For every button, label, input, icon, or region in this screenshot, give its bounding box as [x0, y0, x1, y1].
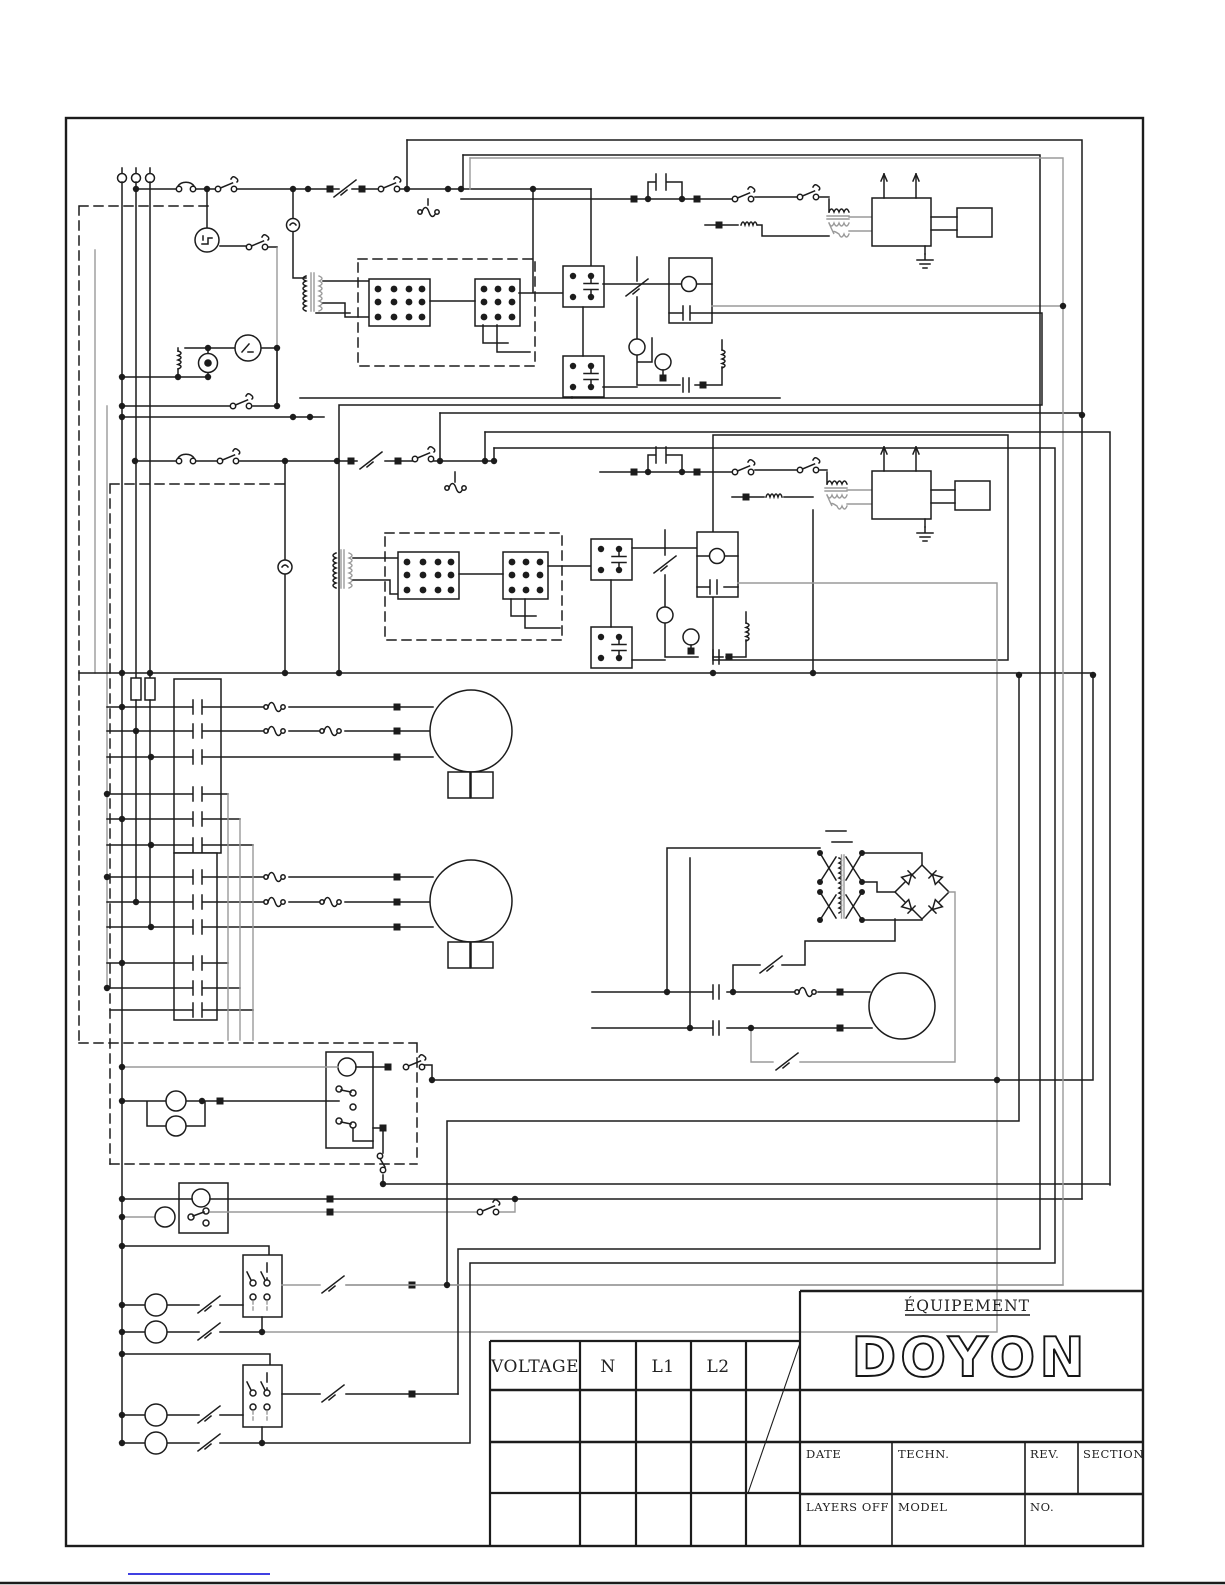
contactor-terminal-grid-icon: [398, 552, 459, 599]
capacitor-icon: [683, 378, 689, 392]
ignition-transformer-icon: [827, 209, 849, 237]
coil-icon: [178, 351, 181, 369]
contactor-terminal-grid-icon: [369, 279, 430, 326]
element-contact-bank-icon: [174, 853, 217, 1020]
spark-electrode-icon: [913, 174, 919, 198]
buzzer-icon: [278, 560, 292, 574]
no-field-label: NO.: [1030, 1500, 1054, 1514]
fuse-icon: [145, 678, 155, 700]
door-switch-block-icon: [243, 1255, 282, 1317]
contactor-terminal-grid-icon: [475, 279, 520, 326]
ground-icon: [917, 527, 933, 541]
dual-transformer-icon: [817, 850, 865, 923]
capacitor-icon: [713, 985, 719, 999]
indicator-lamp-icon: [166, 1091, 186, 1111]
techn-field-label: TECHN.: [898, 1447, 949, 1461]
brand-logo: DOYON: [851, 1326, 1088, 1389]
phase-terminal-icon: [132, 174, 141, 183]
thermal-contact-icon: [198, 1406, 220, 1423]
pump-motor-icon: [869, 973, 935, 1039]
burner-circuit-2: [135, 413, 1082, 1332]
switch-icon: [412, 447, 435, 462]
breaker-icon: [322, 1385, 344, 1402]
indicator-lamp-icon: [145, 1294, 167, 1316]
overload-icon: [795, 988, 816, 997]
heating-elements-and-motors: [79, 673, 1093, 1040]
pilot-valve-icon: [655, 354, 671, 370]
coil-icon: [722, 350, 725, 368]
phase-input-terminals: [95, 168, 155, 1443]
phase-terminal-icon: [118, 174, 127, 183]
capacitor-icon: [648, 174, 682, 199]
switch-icon: [217, 449, 240, 464]
spark-electrode-icon: [881, 447, 887, 471]
indicator-lamp-icon: [145, 1321, 167, 1343]
rev-field-label: REV.: [1030, 1447, 1059, 1461]
blower-motor-icon: [430, 690, 512, 772]
burner-circuit-1: [122, 140, 1063, 673]
inductor-icon: [741, 222, 757, 225]
model-field-label: MODEL: [898, 1500, 947, 1514]
ground-icon: [917, 254, 933, 268]
relay-contact-block-icon: [563, 266, 604, 307]
switch-icon: [732, 460, 755, 475]
thermostat-icon: [155, 1207, 175, 1227]
voltage-column-header: VOLTAGE: [490, 1357, 579, 1377]
transformer-icon: [333, 550, 352, 588]
n-column-header: N: [600, 1357, 615, 1377]
overload-icon: [445, 484, 466, 493]
transformer-rectifier-pump: [592, 831, 955, 1070]
switch-icon: [403, 1055, 426, 1070]
indicator-lamp-icon: [145, 1404, 167, 1426]
thermal-contact-icon: [198, 1434, 220, 1451]
breaker-icon: [322, 1276, 344, 1293]
sensor-box-icon: [955, 481, 990, 510]
sensor-box-icon: [957, 208, 992, 237]
dial-control-icon: [235, 335, 261, 361]
relay-contact-block-icon: [563, 356, 604, 397]
ignition-module-icon: [872, 198, 931, 246]
flame-sensor-icon: [629, 339, 645, 355]
layers-field-label: LAYERS OFF: [806, 1500, 889, 1514]
capacitor-icon: [713, 1021, 719, 1035]
thermal-contact-icon: [198, 1323, 220, 1340]
element-contact-bank-icon: [174, 679, 221, 853]
l2-column-header: L2: [706, 1357, 729, 1377]
contactor-terminal-grid-icon: [503, 552, 548, 599]
fuse-icon: [176, 454, 195, 463]
breaker-icon: [760, 956, 782, 973]
schematic-page: VOLTAGE N L1 L2 ÉQUIPEMENT DOYON DATE TE…: [0, 0, 1225, 1585]
inductor-icon: [766, 494, 782, 497]
relay-contact-block-icon: [591, 627, 632, 668]
switch-icon: [477, 1200, 500, 1215]
capacitor-icon: [648, 447, 682, 472]
switch-icon: [797, 458, 820, 473]
buzzer-icon: [287, 219, 300, 232]
control-relay-section: [122, 675, 1110, 1233]
indicator-lamp-icon: [145, 1432, 167, 1454]
thermal-contact-icon: [198, 1296, 220, 1313]
hi-limit-thermostat-icon: [195, 228, 219, 252]
wiring-diagram-canvas: VOLTAGE N L1 L2 ÉQUIPEMENT DOYON DATE TE…: [0, 0, 1225, 1585]
phase-terminal-icon: [146, 174, 155, 183]
section-field-label: SECTION: [1083, 1447, 1144, 1461]
ignition-transformer-icon: [825, 481, 847, 509]
blower-motor-icon: [430, 860, 512, 942]
door-switch-block-icon: [243, 1365, 282, 1427]
ignition-module-icon: [872, 471, 931, 519]
fuse-icon: [131, 678, 141, 700]
l1-column-header: L1: [651, 1357, 674, 1377]
brand-tagline: ÉQUIPEMENT: [904, 1297, 1030, 1315]
indicator-lamp-icon: [166, 1116, 186, 1136]
switch-icon: [732, 187, 755, 202]
fuse-icon: [176, 182, 195, 191]
bridge-rectifier-icon: [895, 865, 949, 919]
breaker-icon: [360, 452, 382, 469]
switch-icon: [246, 235, 268, 250]
relay-coil-icon: [338, 1058, 356, 1076]
switch-icon: [215, 177, 238, 192]
switch-icon: [230, 394, 253, 409]
switch-icon: [797, 185, 820, 200]
breaker-icon: [654, 556, 676, 573]
interconnect-bus: [262, 140, 1110, 1443]
overload-icon: [418, 208, 439, 217]
switch-icon: [378, 177, 401, 192]
voltage-table: VOLTAGE N L1 L2: [490, 1291, 800, 1545]
title-block: VOLTAGE N L1 L2 ÉQUIPEMENT DOYON DATE TE…: [490, 1291, 1144, 1545]
relay-contact-block-icon: [591, 539, 632, 580]
pilot-valve-icon: [683, 629, 699, 645]
breaker-icon: [776, 1053, 798, 1070]
switch-icon: [377, 1153, 385, 1172]
date-field-label: DATE: [806, 1447, 841, 1461]
spark-electrode-icon: [913, 447, 919, 471]
table-diagonal-strike: [748, 1343, 800, 1493]
flame-sensor-icon: [657, 607, 673, 623]
relay-coil-icon: [192, 1189, 210, 1207]
brand-box: ÉQUIPEMENT DOYON DATE TECHN. REV. SECTIO…: [800, 1291, 1144, 1545]
spark-electrode-icon: [881, 174, 887, 198]
coil-icon: [746, 623, 749, 641]
